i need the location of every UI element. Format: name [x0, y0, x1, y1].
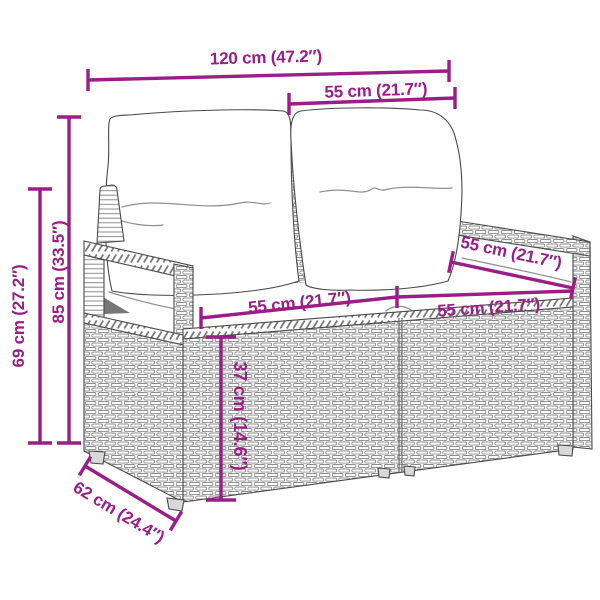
- foot-center-right: [404, 466, 415, 476]
- left-arm-outer-face: [84, 255, 104, 318]
- right-arm-panel: [573, 236, 592, 449]
- dim-width-total-label: 120 cm (47.2″): [210, 47, 323, 69]
- dim-arm-height-label: 69 cm (27.2″): [9, 265, 28, 368]
- foot-center-left: [378, 468, 390, 478]
- foot-front-right: [558, 445, 573, 456]
- dim-base-height-label: 37 cm (14.6″): [230, 361, 250, 470]
- dim-height-total: 85 cm (33.5″): [49, 117, 81, 443]
- sofa-dimension-illustration: 120 cm (47.2″) 55 cm (21.7″) 85 cm (33.5…: [0, 0, 600, 600]
- dim-back-section-label: 55 cm (21.7″): [324, 79, 427, 102]
- foot-front-left: [167, 498, 184, 511]
- dim-height-total-label: 85 cm (33.5″): [49, 221, 68, 324]
- right-back-pillow: [291, 108, 462, 290]
- dim-arm-height: 69 cm (27.2″): [9, 189, 52, 443]
- product-dimension-diagram: 120 cm (47.2″) 55 cm (21.7″) 85 cm (33.5…: [0, 0, 600, 600]
